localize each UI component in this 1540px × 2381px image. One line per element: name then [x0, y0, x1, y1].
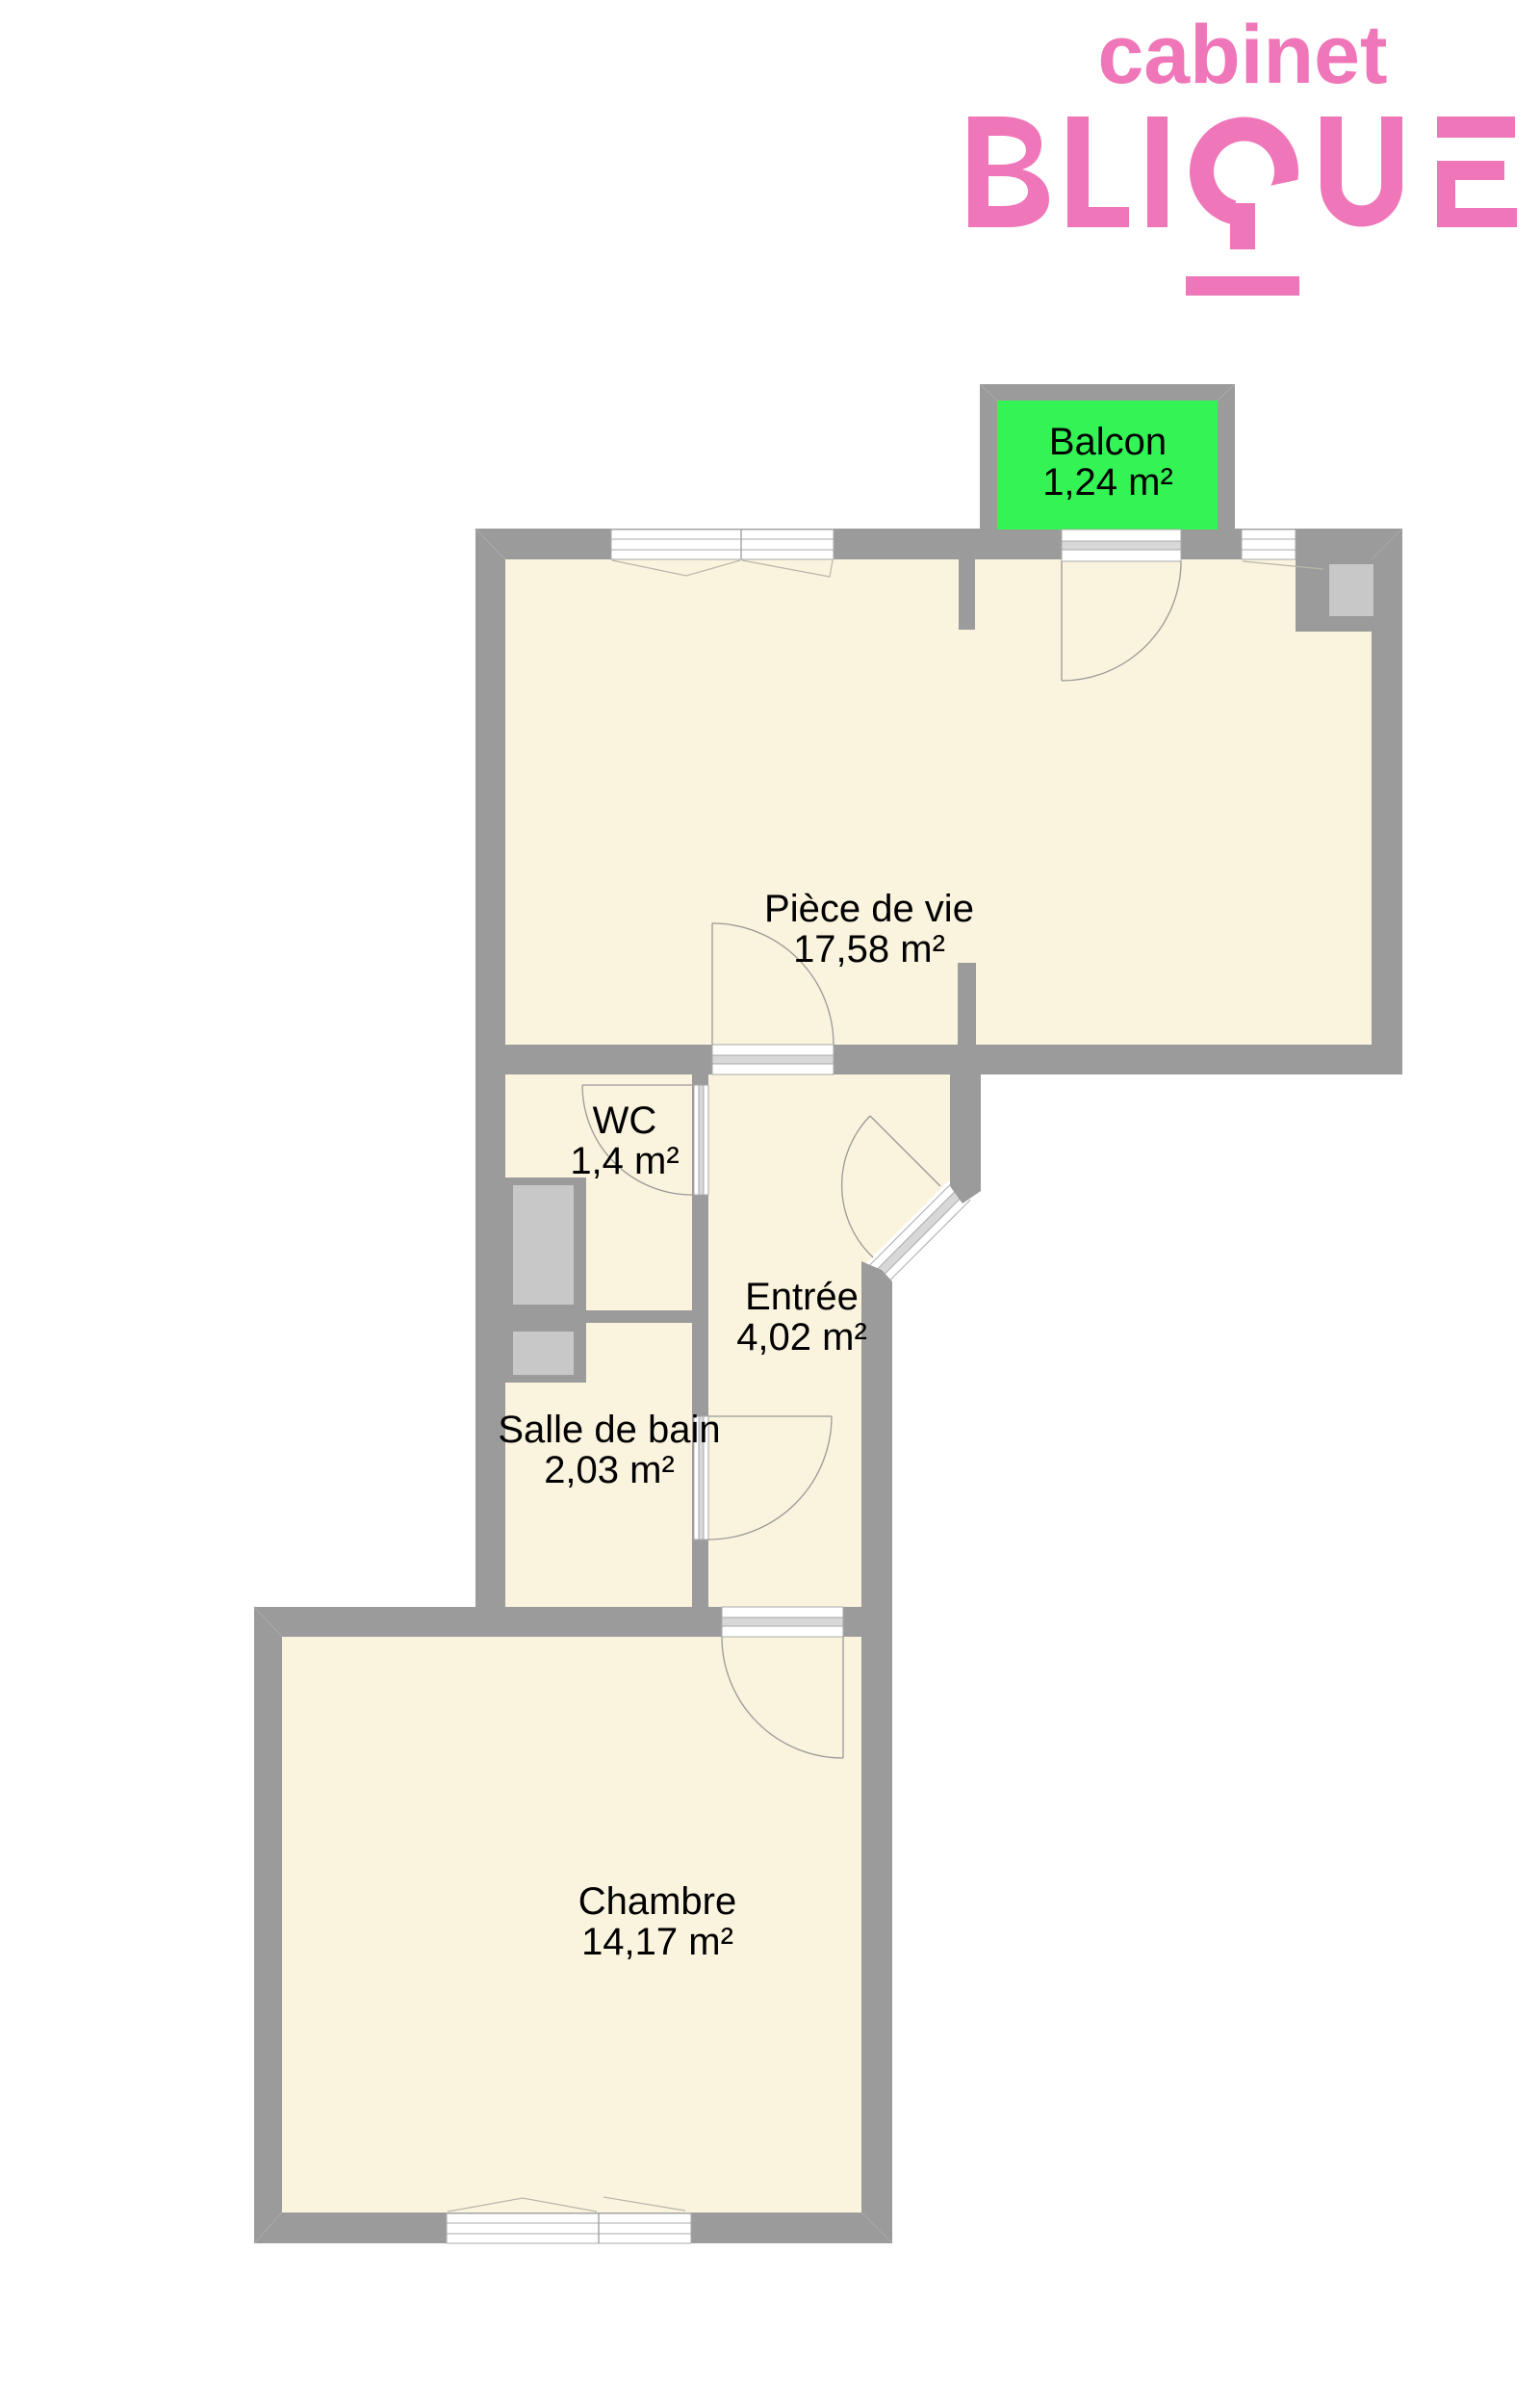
svg-text:Salle de bain: Salle de bain [498, 1409, 720, 1451]
svg-text:1,24 m²: 1,24 m² [1042, 461, 1173, 504]
svg-text:WC: WC [593, 1100, 657, 1142]
svg-text:1,4 m²: 1,4 m² [570, 1140, 679, 1182]
svg-text:Entrée: Entrée [745, 1276, 859, 1318]
svg-text:Balcon: Balcon [1049, 421, 1167, 463]
svg-text:4,02 m²: 4,02 m² [736, 1316, 867, 1359]
svg-text:17,58 m²: 17,58 m² [793, 928, 945, 971]
svg-text:Pièce de vie: Pièce de vie [764, 888, 974, 930]
svg-text:Chambre: Chambre [578, 1880, 737, 1923]
svg-text:2,03 m²: 2,03 m² [544, 1449, 675, 1491]
svg-text:14,17 m²: 14,17 m² [581, 1921, 733, 1963]
svg-text:cabinet: cabinet [1097, 9, 1387, 101]
